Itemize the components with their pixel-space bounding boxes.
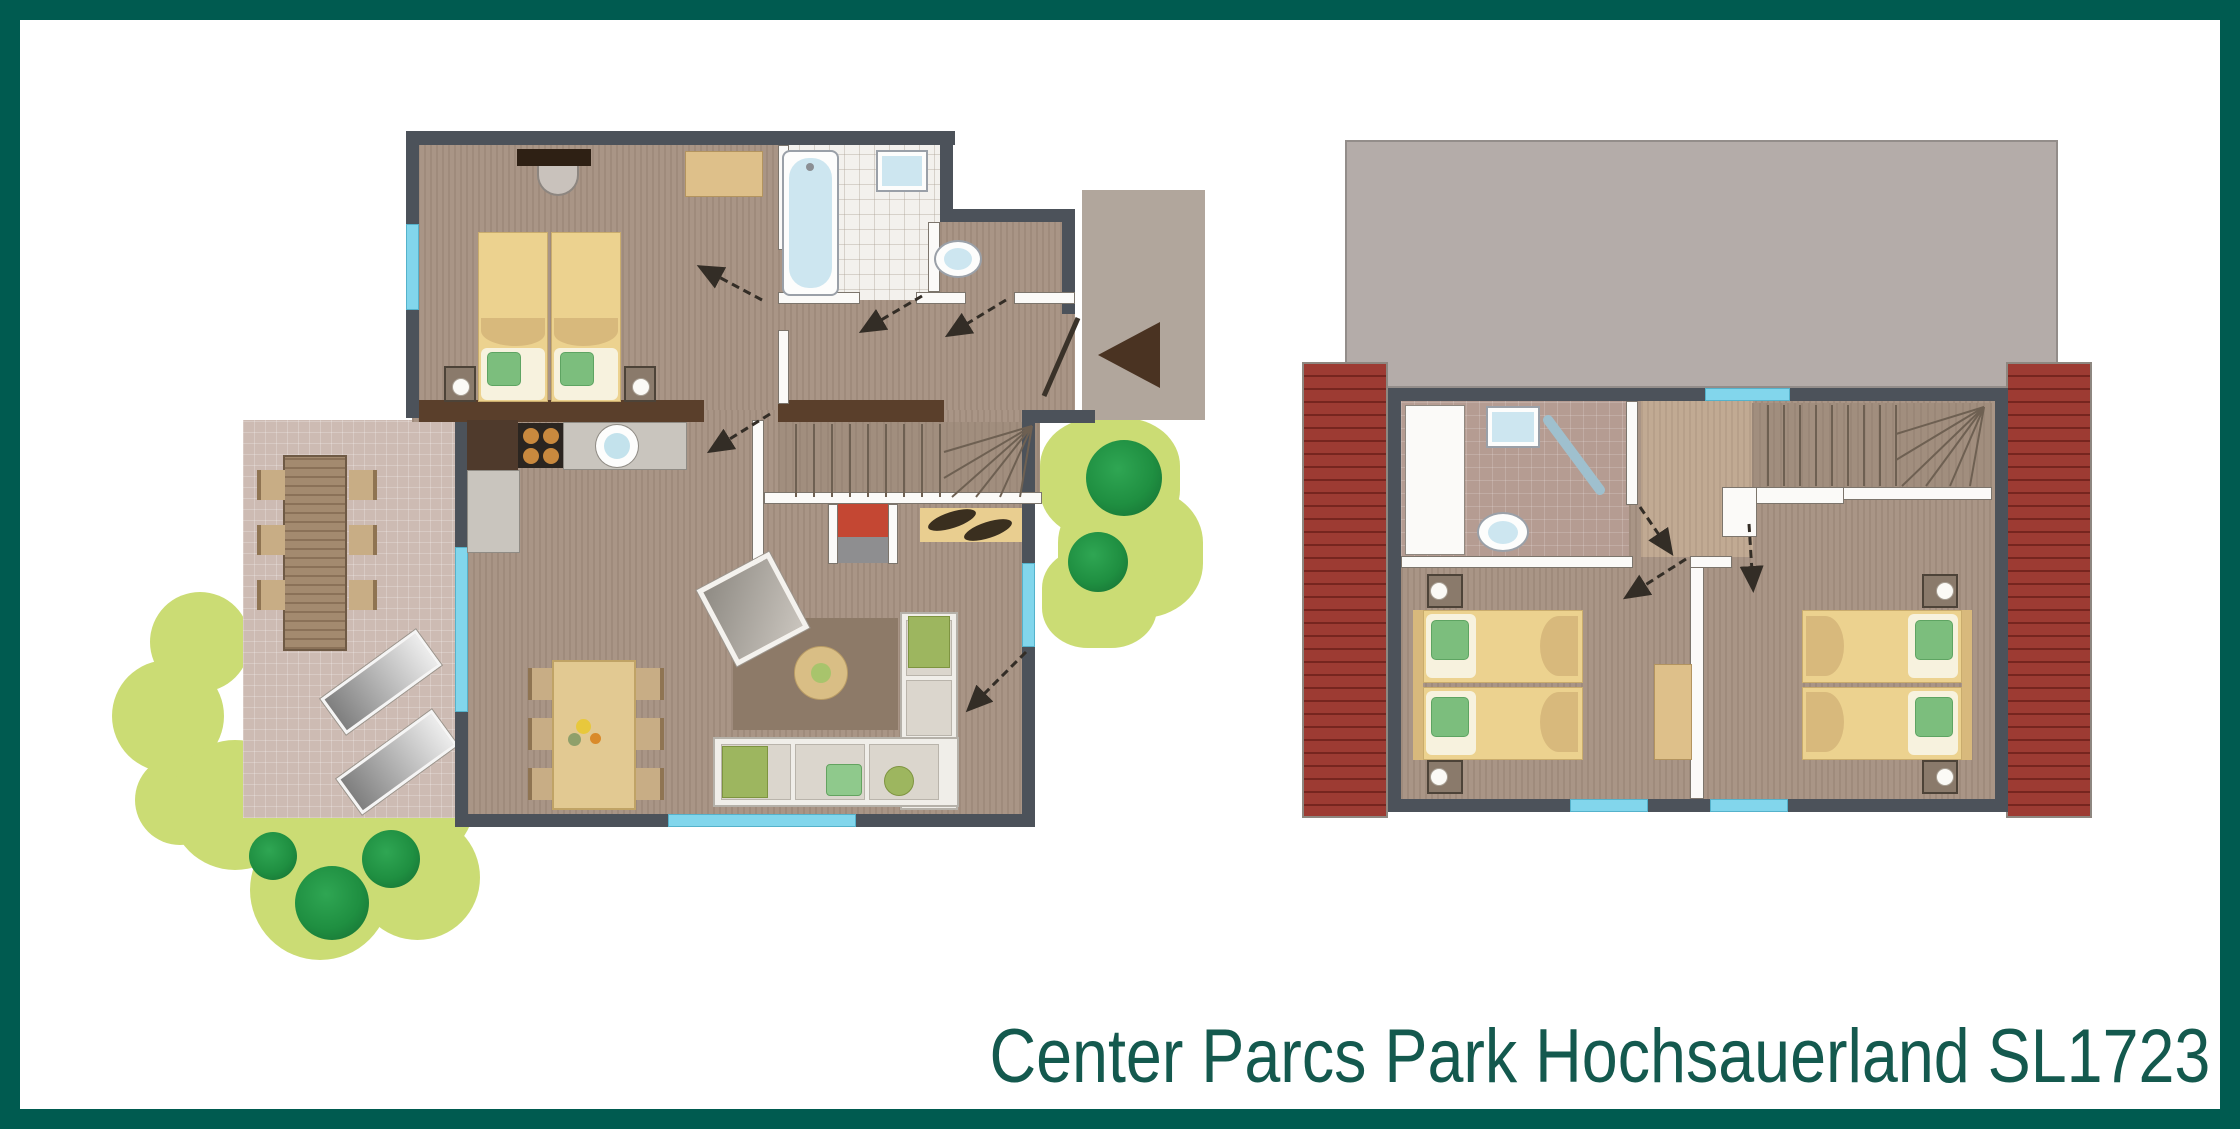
shower-icon (1548, 420, 1600, 490)
staircase-steps (796, 424, 1032, 497)
floor-plan-image: Center Parcs Park Hochsauerland SL1723 (0, 0, 2240, 1129)
front-door-leaf (1044, 318, 1078, 396)
page-title: Center Parcs Park Hochsauerland SL1723 (989, 1012, 2210, 1102)
plan-linework (0, 0, 2240, 1129)
upper-staircase-steps (1768, 405, 1984, 486)
shoes-icon (926, 505, 1014, 546)
